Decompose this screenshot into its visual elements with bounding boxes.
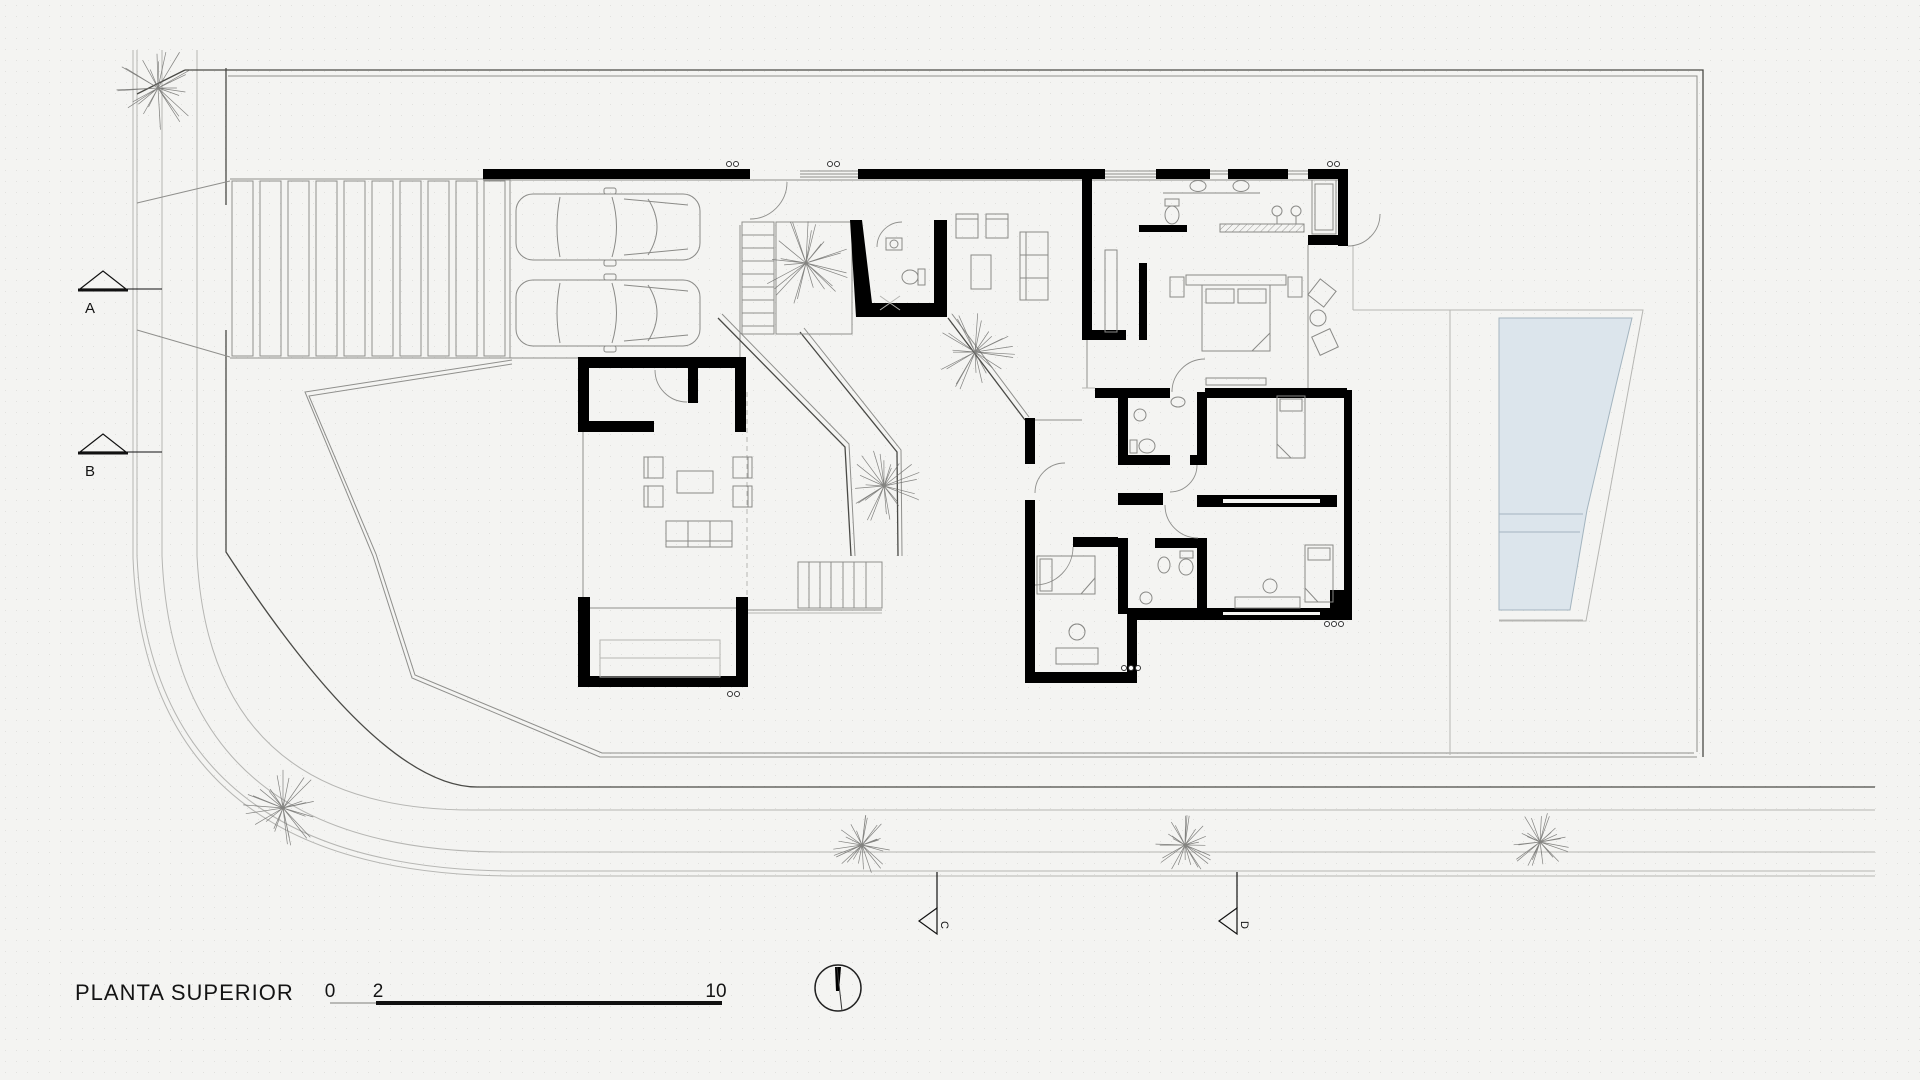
scale-tick-2: 2 (373, 981, 384, 1002)
family-room-furniture (600, 457, 752, 677)
section-label-a: A (85, 300, 95, 317)
bedroom2-furniture (1130, 396, 1305, 458)
north-compass (815, 965, 861, 1011)
floorplan-drawing: A B C D PLANTA SUPERIOR 0 2 10 (0, 0, 1920, 1080)
tree (767, 221, 847, 303)
bedroom3-furniture (1140, 545, 1333, 608)
living-room-furniture (956, 214, 1048, 300)
tree (833, 815, 889, 873)
tree (117, 52, 191, 130)
section-marker-c: C (919, 872, 950, 934)
pool (1353, 245, 1643, 755)
patio-furniture (1308, 279, 1338, 355)
tree (855, 451, 919, 521)
ramp-walkway (718, 314, 1029, 556)
section-marker-a: A (78, 271, 162, 317)
section-marker-b: B (78, 434, 162, 480)
window-slit (1223, 499, 1320, 503)
scale-bar: 0 2 10 (325, 981, 727, 1005)
tree (1514, 813, 1569, 865)
bedroom4-furniture (1037, 556, 1098, 664)
ramp-stripes (232, 181, 505, 356)
tree (1156, 815, 1211, 869)
window-slit (1223, 612, 1320, 615)
house-walls (483, 169, 1352, 687)
closet-nook (1312, 180, 1336, 234)
section-marker-d: D (1219, 872, 1250, 934)
car-1 (516, 188, 700, 266)
master-suite-furniture (1105, 181, 1304, 386)
front-yard-fence (305, 360, 1697, 757)
bath-fixtures-hall (880, 238, 925, 310)
plan-title: PLANTA SUPERIOR (75, 980, 294, 1005)
door-arcs (655, 182, 1380, 585)
floorplan-canvas: A B C D PLANTA SUPERIOR 0 2 10 (0, 0, 1920, 1080)
scale-tick-10: 10 (705, 981, 726, 1002)
section-label-d: D (1238, 921, 1250, 929)
pool-water (1499, 318, 1632, 610)
section-label-b: B (85, 463, 95, 480)
stair-garden (745, 562, 882, 613)
scale-tick-0: 0 (325, 981, 336, 1002)
garage (516, 188, 700, 352)
car-2 (516, 274, 700, 352)
tree (243, 770, 314, 845)
section-label-c: C (938, 921, 950, 929)
